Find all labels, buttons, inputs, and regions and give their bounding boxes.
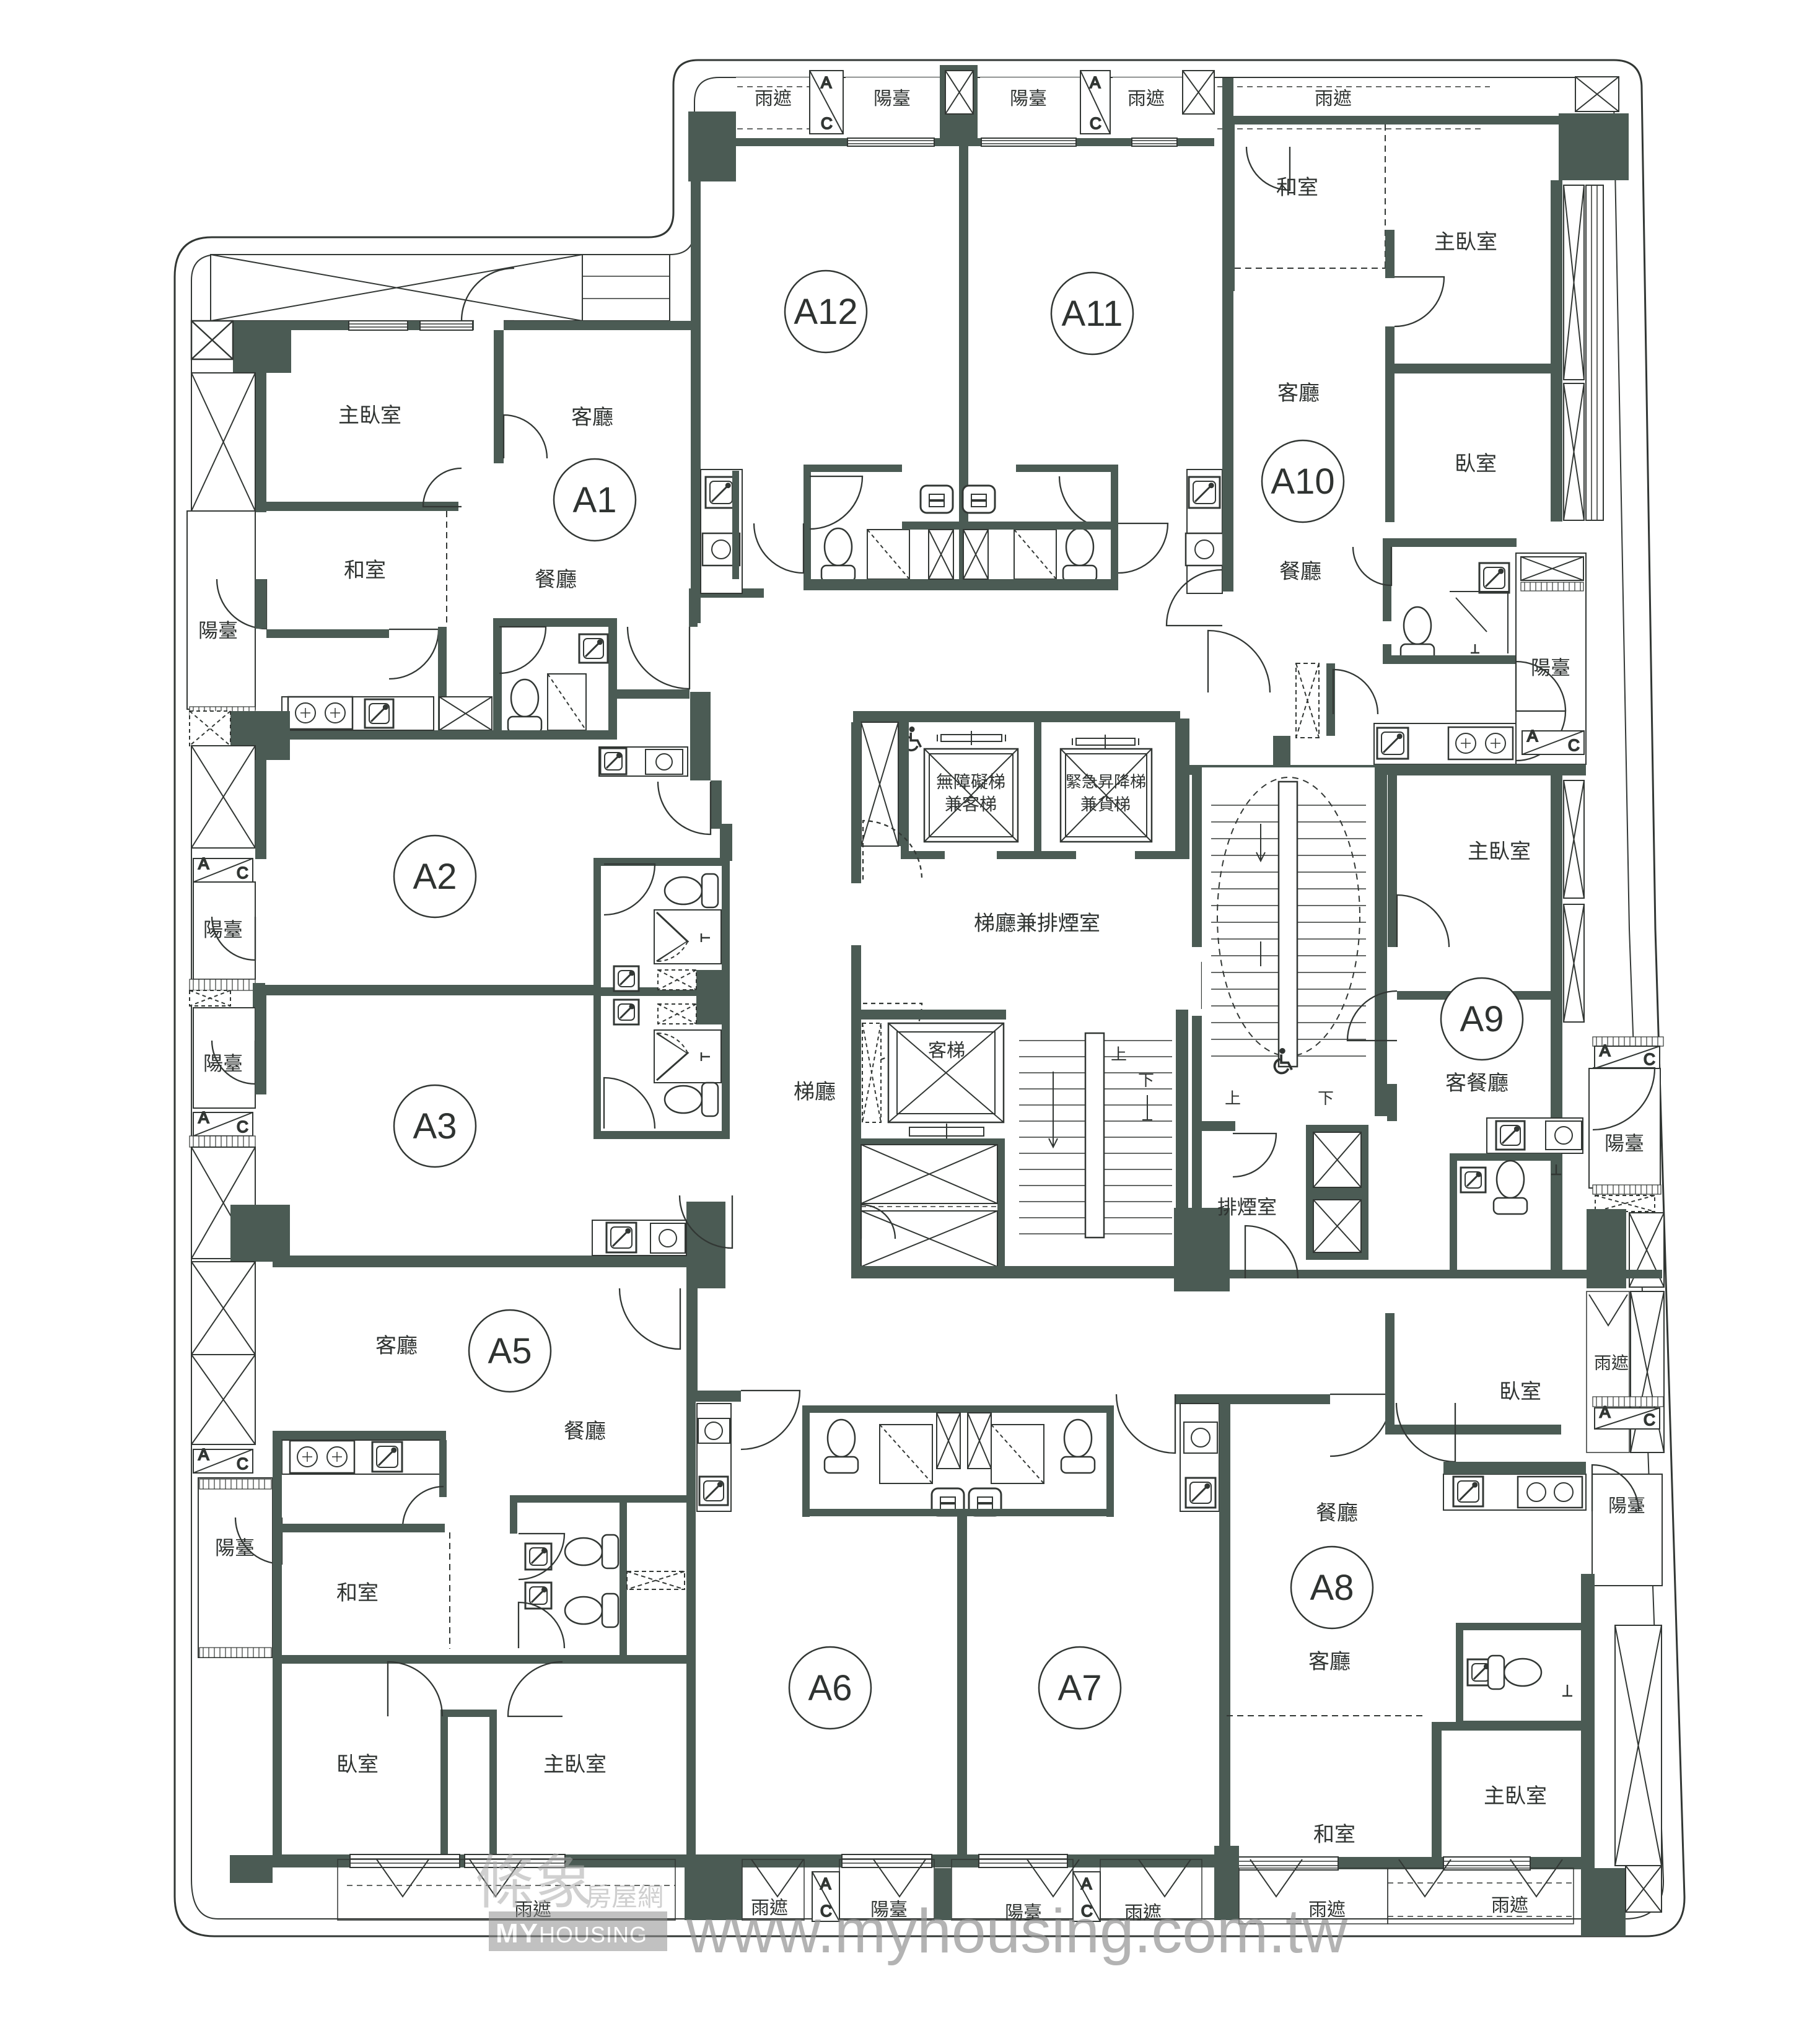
svg-text:A: A xyxy=(198,1445,209,1464)
svg-text:C: C xyxy=(1568,736,1580,754)
svg-text:A: A xyxy=(1090,73,1101,92)
svg-text:C: C xyxy=(1090,114,1101,133)
svg-text:MY: MY xyxy=(496,1918,539,1949)
svg-text:A9: A9 xyxy=(1460,999,1504,1039)
svg-text:A1: A1 xyxy=(573,480,617,520)
svg-text:A: A xyxy=(820,1874,831,1893)
svg-text:www.myhousing.com.tw: www.myhousing.com.tw xyxy=(686,1897,1348,1966)
svg-text:C: C xyxy=(237,1454,248,1473)
svg-text:A12: A12 xyxy=(794,292,857,332)
svg-text:A11: A11 xyxy=(1062,294,1123,334)
svg-text:A5: A5 xyxy=(488,1331,532,1371)
svg-text:A: A xyxy=(198,1108,209,1127)
svg-text:A: A xyxy=(821,73,832,92)
svg-text:A3: A3 xyxy=(413,1106,457,1146)
svg-text:A: A xyxy=(1600,1041,1611,1060)
svg-text:C: C xyxy=(237,1117,248,1136)
svg-text:A8: A8 xyxy=(1310,1568,1354,1608)
svg-text:C: C xyxy=(1644,1050,1655,1068)
svg-text:A10: A10 xyxy=(1271,461,1334,502)
svg-text:A7: A7 xyxy=(1058,1668,1102,1708)
svg-text:A: A xyxy=(1600,1402,1611,1421)
svg-text:C: C xyxy=(237,863,248,882)
svg-text:HOUSING: HOUSING xyxy=(539,1922,647,1947)
svg-text:A: A xyxy=(198,854,209,873)
svg-text:A6: A6 xyxy=(808,1668,852,1708)
svg-text:C: C xyxy=(1644,1410,1655,1429)
svg-text:A: A xyxy=(1081,1874,1092,1893)
svg-text:C: C xyxy=(821,114,833,133)
svg-text:A: A xyxy=(1527,727,1538,745)
svg-text:A2: A2 xyxy=(413,857,457,897)
